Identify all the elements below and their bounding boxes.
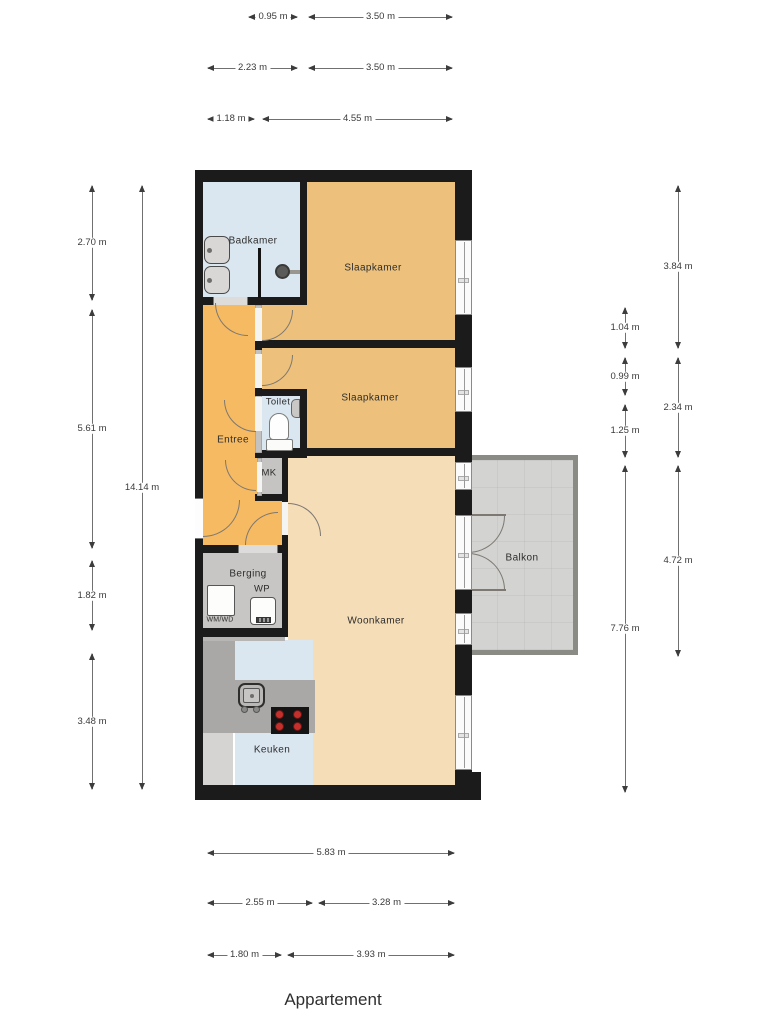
plan-title: Appartement (284, 990, 381, 1010)
room-label-badkamer: Badkamer (229, 236, 278, 247)
window-woonkamer-1 (455, 462, 472, 490)
dim-bottom-1: 5.83 m (207, 849, 455, 857)
dim-right-outer-1: 3.84 m (674, 185, 682, 349)
dim-top-1b: 3.50 m (308, 13, 453, 21)
dim-top-3b: 4.55 m (262, 115, 453, 123)
dim-bottom-2a: 2.55 m (207, 899, 313, 907)
dim-left-total: 14.14 m (138, 185, 146, 790)
room-label-woonkamer: Woonkamer (347, 616, 404, 627)
balcony-door-frame (455, 515, 472, 590)
dim-right-1: 1.04 m (621, 307, 629, 349)
dim-right-outer-3: 4.72 m (674, 465, 682, 657)
wall-toilet-bottom (255, 450, 307, 458)
wall-woonkamer-top (282, 448, 455, 456)
dim-label: 3.84 m (660, 262, 695, 272)
kitchen-side-strip (203, 733, 233, 785)
dim-top-3a: 1.18 m (207, 115, 255, 123)
wall-top (195, 170, 472, 182)
room-label-wm-wd: WM/WD (206, 617, 233, 624)
room-label-balkon: Balkon (506, 553, 539, 564)
kitchen-sink-basin (243, 688, 260, 703)
dim-label: 2.23 m (235, 63, 270, 73)
wall-corner-foot (472, 772, 481, 800)
dim-label: 3.50 m (363, 12, 398, 22)
heatpump-grille (256, 617, 271, 623)
room-label-toilet: Toilet (266, 397, 291, 408)
window-slaapkamer2 (455, 367, 472, 412)
dim-label: 2.70 m (74, 238, 109, 248)
room-label-wp: WP (254, 584, 270, 595)
slaapkamer2-door-opening (255, 354, 262, 388)
shower-partition (258, 248, 261, 298)
bathroom-sink-icon (204, 236, 230, 264)
faucet-knob (253, 706, 260, 713)
room-label-slaapkamer-1: Slaapkamer (344, 263, 401, 274)
toilet-bowl-icon (269, 413, 289, 440)
dim-label: 5.61 m (74, 424, 109, 434)
dim-label: 3.93 m (353, 950, 388, 960)
cooktop-icon (271, 707, 309, 734)
dim-label: 5.83 m (313, 848, 348, 858)
dim-right-3: 1.25 m (621, 404, 629, 458)
dim-left-1: 2.70 m (88, 185, 96, 301)
dim-label: 2.34 m (660, 402, 695, 412)
dim-left-4: 3.48 m (88, 653, 96, 790)
dim-left-3: 1.82 m (88, 560, 96, 631)
wall-bedroom-divider (255, 340, 455, 348)
wall-berging-bottom (195, 628, 288, 637)
bathroom-sink-icon (204, 266, 230, 294)
dim-label: 7.76 m (607, 624, 642, 634)
dim-right-outer-2: 2.34 m (674, 357, 682, 458)
toilet-tank-icon (266, 439, 293, 451)
wall-badkamer-right (300, 182, 307, 305)
wall-left (195, 170, 203, 800)
dim-right-4: 7.76 m (621, 465, 629, 793)
dim-label: 4.72 m (660, 556, 695, 566)
window-slaapkamer1 (455, 240, 472, 315)
dim-label: 2.55 m (242, 898, 277, 908)
room-label-mk: MK (261, 468, 276, 479)
dim-right-2: 0.99 m (621, 357, 629, 396)
dim-label: 1.82 m (74, 590, 109, 600)
dim-bottom-2b: 3.28 m (318, 899, 455, 907)
window-woonkamer-3 (455, 695, 472, 770)
dim-label: 1.18 m (213, 114, 248, 124)
room-label-berging: Berging (229, 569, 266, 580)
dim-label: 4.55 m (340, 114, 375, 124)
front-door-opening (195, 498, 203, 539)
washer-icon (207, 585, 235, 616)
dim-label: 3.28 m (369, 898, 404, 908)
dim-left-2: 5.61 m (88, 309, 96, 549)
faucet-knob (241, 706, 248, 713)
shower-head-icon (275, 264, 290, 279)
room-label-slaapkamer-2: Slaapkamer (341, 393, 398, 404)
room-label-entree: Entree (217, 435, 249, 446)
dim-label: 1.80 m (227, 950, 262, 960)
dim-label: 14.14 m (122, 482, 162, 492)
toilet-door-opening (255, 397, 262, 431)
dim-label: 3.50 m (363, 63, 398, 73)
apartment-plan: Badkamer Slaapkamer Slaapkamer Toilet En… (195, 170, 472, 800)
dim-top-1a: 0.95 m (248, 13, 298, 21)
slaapkamer1-door-opening (255, 308, 262, 341)
dim-label: 1.25 m (607, 426, 642, 436)
dim-label: 0.95 m (255, 12, 290, 22)
dim-bottom-3a: 1.80 m (207, 951, 282, 959)
dim-top-2a: 2.23 m (207, 64, 298, 72)
wall-bottom (195, 785, 472, 800)
dim-top-2b: 3.50 m (308, 64, 453, 72)
dim-label: 1.04 m (607, 323, 642, 333)
dim-label: 3.48 m (74, 716, 109, 726)
dim-label: 0.99 m (607, 371, 642, 381)
room-label-keuken: Keuken (254, 745, 290, 756)
toilet-sink-icon (291, 399, 300, 418)
wall-berging-right (282, 545, 288, 637)
dim-bottom-3b: 3.93 m (287, 951, 455, 959)
kitchen-curb (203, 637, 285, 641)
berging-door-opening (238, 545, 278, 553)
floorplan-page: 0.95 m 3.50 m 2.23 m 3.50 m 1.18 m 4.55 … (0, 0, 768, 1024)
window-woonkamer-2 (455, 613, 472, 645)
